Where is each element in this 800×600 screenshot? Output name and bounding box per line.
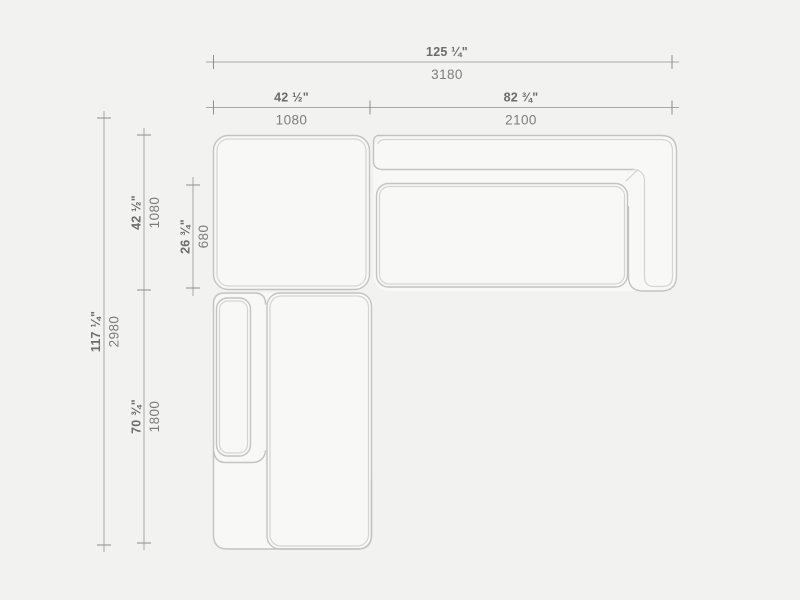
right-module-fill	[374, 136, 677, 292]
corner-module-fill	[214, 136, 370, 290]
sofa-dimension-drawing: 125 ¼" 3180 42 ½" 1080 82 ¾" 2100 117 ¼"…	[0, 0, 800, 600]
dimension-lines	[97, 55, 679, 552]
label-right-width-mm: 2100	[505, 113, 537, 128]
label-corner-depth-mm: 1080	[147, 197, 162, 229]
drawing-canvas: 125 ¼" 3180 42 ½" 1080 82 ¾" 2100 117 ¼"…	[0, 0, 800, 600]
module-fills	[214, 136, 677, 550]
label-corner-width-inches: 42 ½"	[274, 91, 309, 105]
label-corner-depth-inches: 42 ½"	[130, 195, 144, 230]
label-corner-width-mm: 1080	[276, 113, 308, 128]
label-overall-depth-mm: 2980	[107, 316, 122, 348]
label-chaise-depth-mm: 1800	[147, 401, 162, 433]
label-overall-width-mm: 3180	[431, 67, 463, 82]
label-seat-depth-inches: 26 ¾"	[179, 219, 193, 254]
label-overall-width-inches: 125 ¼"	[426, 45, 468, 59]
label-seat-depth-mm: 680	[196, 225, 211, 249]
label-right-width-inches: 82 ¾"	[504, 91, 539, 105]
chaise-module-fill	[214, 293, 372, 549]
label-chaise-depth-inches: 70 ¾"	[130, 399, 144, 434]
label-overall-depth-inches: 117 ¼"	[89, 311, 103, 352]
